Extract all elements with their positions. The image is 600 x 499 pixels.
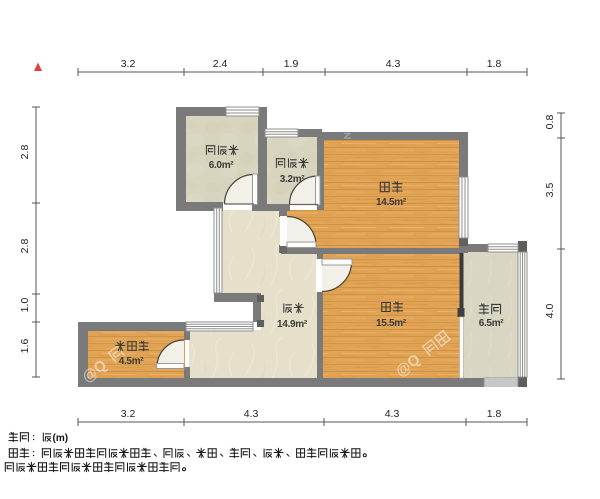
svg-text:3.2m²: 3.2m²	[280, 174, 306, 185]
svg-text:2.8: 2.8	[19, 145, 31, 160]
svg-text:2.8: 2.8	[19, 239, 31, 254]
svg-text:4.3: 4.3	[386, 58, 401, 70]
svg-text:15.5m²: 15.5m²	[376, 318, 407, 329]
svg-text:3.5: 3.5	[544, 183, 556, 198]
svg-text:1.0: 1.0	[19, 298, 31, 313]
svg-text:6.0m²: 6.0m²	[209, 160, 235, 171]
svg-text:1.8: 1.8	[487, 58, 502, 70]
svg-text:6.5m²: 6.5m²	[479, 318, 505, 329]
svg-text:3.2: 3.2	[121, 58, 136, 70]
svg-text:(m): (m)	[53, 433, 69, 444]
svg-text:1.6: 1.6	[19, 339, 31, 354]
svg-text:2.4: 2.4	[213, 58, 228, 70]
svg-text:14.5m²: 14.5m²	[376, 197, 407, 208]
svg-text:1.8: 1.8	[487, 408, 502, 420]
svg-text:0.8: 0.8	[544, 115, 556, 130]
svg-text:3.2: 3.2	[121, 408, 136, 420]
svg-text:4.3: 4.3	[244, 408, 259, 420]
svg-text:4.3: 4.3	[385, 408, 400, 420]
svg-text:14.9m²: 14.9m²	[277, 319, 308, 330]
svg-text:1.9: 1.9	[284, 58, 299, 70]
svg-text:4.5m²: 4.5m²	[119, 356, 145, 367]
svg-text:4.0: 4.0	[544, 304, 556, 319]
